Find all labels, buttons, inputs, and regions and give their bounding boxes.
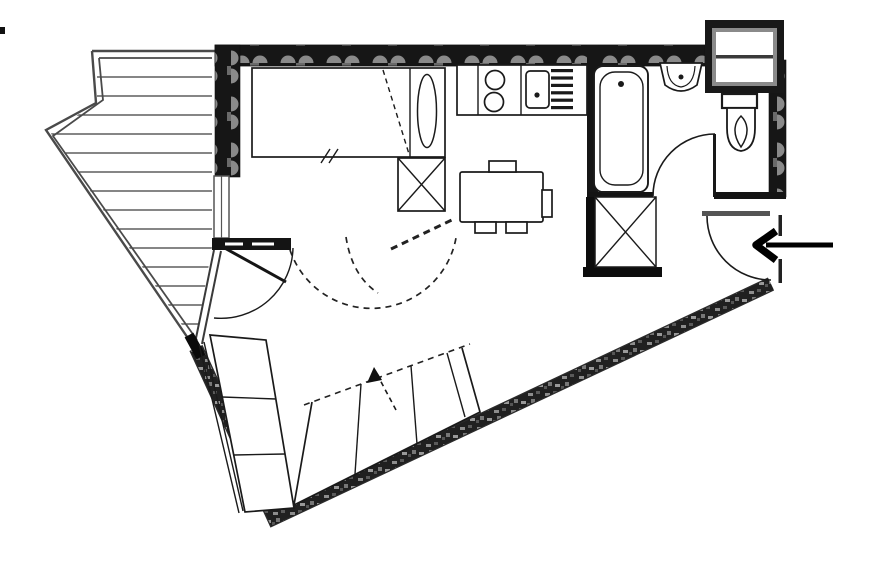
bed	[252, 68, 445, 163]
balcony-decking-lines	[35, 77, 218, 343]
wardrobe-x	[398, 158, 445, 211]
bathtub-drain	[618, 81, 624, 87]
sink	[526, 71, 549, 108]
sleeping-area	[252, 68, 445, 211]
edge-speck	[0, 27, 5, 34]
chair	[489, 161, 516, 172]
wall-top	[215, 45, 705, 66]
dining-area	[460, 161, 552, 233]
sink-drain	[534, 92, 539, 97]
washbasin	[660, 63, 702, 91]
chair	[475, 222, 496, 233]
wall-bath-south-right	[714, 192, 786, 199]
entrance	[702, 211, 833, 283]
double-door-leaf-dashed	[391, 218, 456, 249]
utility-closet-x	[583, 197, 662, 277]
entry-door-leaf	[779, 259, 783, 283]
balcony-door-leaf	[221, 246, 286, 282]
dining-table	[460, 172, 543, 222]
balcony-railing-inner	[53, 58, 212, 340]
balcony	[35, 51, 218, 347]
bathroom-door-arc	[653, 134, 715, 196]
bedroom-window	[214, 176, 229, 238]
chair	[506, 222, 527, 233]
balcony-door-arc	[214, 248, 293, 318]
service-duct	[705, 20, 784, 93]
angled-glazed-wall	[195, 250, 221, 344]
entry-threshold	[702, 211, 770, 216]
pillow	[418, 75, 437, 148]
wall-left-bedroom	[215, 45, 240, 177]
toilet	[722, 94, 757, 151]
bathroom	[583, 63, 715, 277]
double-door-swing-arc	[290, 238, 456, 308]
chair	[542, 190, 552, 217]
double-door-swing-arc	[346, 237, 378, 293]
entry-door-leaf	[779, 215, 783, 236]
toilet-tank	[722, 94, 757, 108]
floor-plan-canvas	[0, 0, 885, 575]
kitchen	[457, 65, 587, 115]
floor-plan-svg	[0, 0, 885, 575]
living-room	[199, 218, 480, 513]
entry-arrow-icon	[756, 231, 833, 260]
